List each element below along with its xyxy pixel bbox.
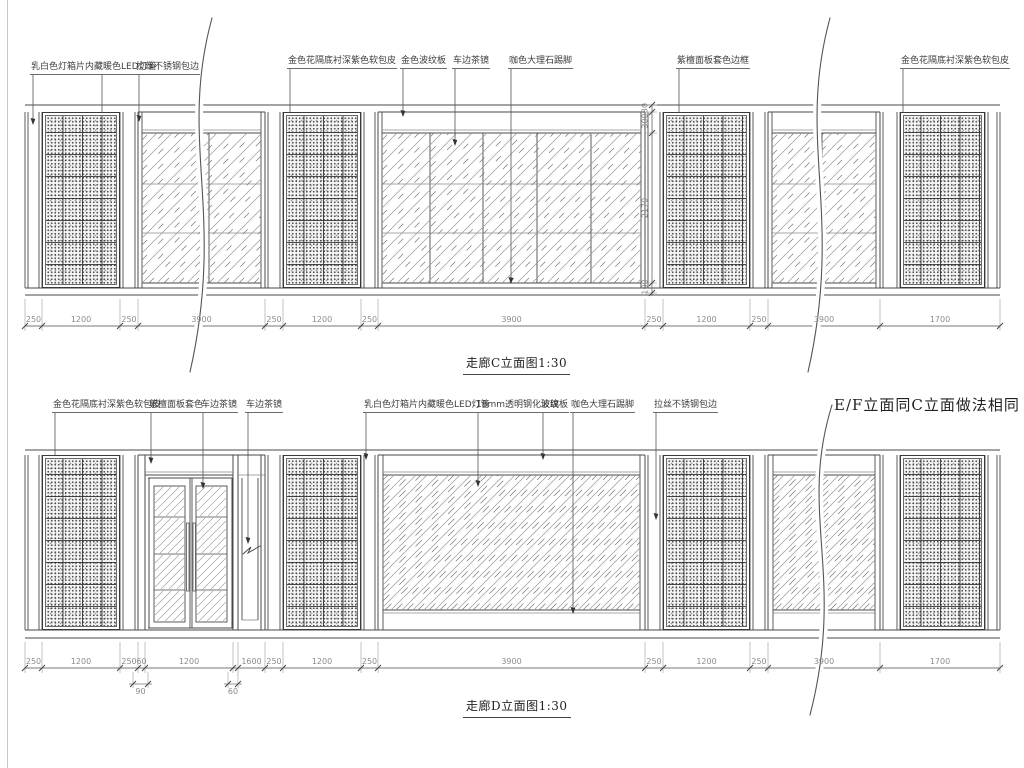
glass-hatch-line — [216, 506, 226, 516]
glass-hatch-line — [155, 487, 171, 503]
glass-hatch-line — [382, 133, 472, 223]
glass-hatch-line — [468, 475, 603, 610]
glass-hatch-line — [179, 201, 261, 283]
glass-hatch-line — [155, 558, 184, 587]
glass-hatch-line — [451, 475, 586, 610]
glass-hatch-line — [773, 475, 784, 486]
elevation-linework — [0, 0, 1024, 768]
glass-hatch-line — [446, 475, 581, 610]
glass-hatch-line — [611, 581, 640, 610]
glass-hatch-line — [383, 475, 482, 574]
glass-hatch-line — [462, 475, 597, 610]
glass-hatch-line — [396, 475, 531, 610]
glass-hatch-line — [607, 249, 641, 283]
glass-hatch-line — [424, 475, 559, 610]
glass-hatch-line — [825, 560, 875, 610]
glass-hatch-line — [404, 133, 554, 283]
glass-hatch-line — [177, 582, 184, 589]
glass-hatch-line — [383, 475, 427, 519]
glass-hatch-line — [434, 133, 584, 283]
glass-hatch-line — [155, 591, 179, 615]
glass-hatch-line — [197, 518, 205, 526]
glass-hatch-line — [509, 151, 641, 283]
glass-hatch-line — [556, 526, 640, 610]
glass-hatch-line — [155, 518, 179, 542]
glass-hatch-line — [550, 520, 640, 610]
glass-hatch-line — [383, 475, 465, 557]
glass-hatch-line — [174, 506, 184, 516]
glass-hatch-line — [772, 133, 847, 208]
glass-hatch-line — [197, 555, 205, 563]
glass-hatch-line — [383, 475, 515, 607]
glass-hatch-line — [202, 529, 226, 553]
glass-hatch-line — [197, 521, 226, 550]
glass-hatch-line — [419, 133, 569, 283]
glass-hatch-line — [172, 194, 261, 283]
glass-hatch-line — [382, 133, 494, 245]
glass-hatch-line — [562, 204, 641, 283]
glass-hatch-line — [614, 256, 641, 283]
glass-hatch-line — [772, 133, 779, 140]
title-elevation-d: 走廊D立面图1:30 — [463, 697, 571, 718]
glass-hatch-line — [512, 482, 640, 610]
glass-hatch-line — [794, 201, 876, 283]
leader-arrow — [288, 220, 293, 227]
glass-hatch-line — [197, 487, 205, 495]
glass-hatch-line — [197, 518, 213, 534]
glass-hatch-line — [824, 231, 876, 283]
glass-hatch-line — [382, 133, 509, 260]
glass-hatch-line — [847, 582, 875, 610]
glass-hatch-line — [435, 475, 570, 610]
glass-hatch-line — [383, 475, 394, 486]
glass-hatch-line — [802, 209, 876, 283]
glass-hatch-line — [605, 575, 640, 610]
glass-hatch-line — [592, 234, 641, 283]
leader-arrow — [901, 117, 906, 124]
glass-hatch-line — [208, 498, 226, 516]
glass-hatch-line — [383, 475, 405, 497]
glass-hatch-line — [391, 475, 526, 610]
glass-hatch-line — [166, 498, 184, 516]
glass-hatch-line — [532, 174, 641, 283]
glass-hatch-line — [772, 133, 787, 148]
glass-hatch-line — [142, 133, 172, 163]
glass-hatch-line — [155, 518, 171, 534]
glass-hatch-line — [155, 555, 163, 563]
glass-hatch-line — [572, 542, 640, 610]
glass-hatch-line — [199, 594, 226, 621]
glass-hatch-line — [224, 246, 261, 283]
door-handle — [187, 523, 190, 591]
glass-hatch-line — [155, 555, 171, 571]
glass-hatch-line — [383, 475, 410, 502]
glass-hatch-line — [382, 133, 457, 208]
leader-arrow — [31, 118, 36, 125]
glass-hatch-line — [418, 475, 553, 610]
glass-hatch-line — [622, 592, 640, 610]
glass-hatch-line — [254, 276, 261, 283]
glass-hatch-line — [382, 133, 389, 140]
leader-arrow — [401, 110, 406, 117]
glass-hatch-line — [567, 537, 640, 610]
glass-hatch-line — [142, 133, 179, 170]
glass-hatch-line — [187, 209, 261, 283]
glass-hatch-line — [402, 475, 537, 610]
glass-hatch-line — [223, 618, 226, 621]
glass-hatch-line — [479, 475, 614, 610]
door-handle — [193, 523, 196, 591]
glass-hatch-line — [382, 133, 419, 170]
glass-hatch-line — [534, 504, 640, 610]
glass-hatch-line — [554, 196, 641, 283]
glass-hatch-line — [197, 555, 221, 579]
glass-hatch-line — [803, 538, 875, 610]
glass-hatch-line — [197, 487, 213, 503]
glass-hatch-line — [382, 133, 412, 163]
glass-hatch-line — [181, 618, 184, 621]
glass-hatch-line — [495, 475, 630, 610]
glass-hatch-line — [382, 133, 397, 148]
glass-hatch-line — [383, 475, 471, 563]
glass-hatch-line — [772, 133, 817, 178]
glass-hatch-line — [792, 527, 875, 610]
glass-hatch-line — [155, 487, 163, 495]
glass-hatch-line — [155, 487, 179, 511]
glass-hatch-line — [773, 475, 855, 557]
mirror-zigzag-symbol — [243, 546, 260, 554]
glass-hatch-line — [773, 475, 800, 502]
glass-hatch-line — [382, 133, 434, 185]
glass-hatch-line — [772, 133, 809, 170]
glass-hatch-line — [382, 133, 524, 275]
glass-hatch-line — [869, 604, 875, 610]
glass-hatch-line — [383, 475, 388, 480]
glass-hatch-line — [869, 276, 876, 283]
glass-hatch-line — [786, 521, 875, 610]
glass-hatch-line — [142, 133, 232, 223]
leader-arrow — [100, 227, 105, 234]
glass-hatch-line — [517, 487, 640, 610]
glass-hatch-line — [155, 591, 163, 599]
glass-hatch-line — [160, 529, 184, 553]
glass-hatch-line — [157, 594, 184, 621]
glass-hatch-line — [383, 475, 487, 579]
ef-note: E/F立面同C立面做法相同 — [834, 394, 1020, 415]
glass-hatch-line — [197, 487, 221, 511]
glass-hatch-line — [142, 133, 187, 178]
glass-hatch-line — [168, 537, 184, 553]
glass-hatch-line — [773, 475, 795, 497]
glass-hatch-line — [429, 475, 564, 610]
glass-hatch-line — [633, 603, 640, 610]
leader-arrow — [677, 117, 682, 124]
glass-hatch-line — [155, 521, 184, 550]
glass-hatch-line — [382, 133, 427, 178]
glass-hatch-line — [773, 475, 806, 508]
glass-hatch-line — [773, 475, 839, 541]
glass-hatch-line — [501, 475, 636, 610]
glass-hatch-line — [219, 582, 226, 589]
title-elevation-c: 走廊C立面图1:30 — [463, 354, 570, 375]
glass-hatch-line — [383, 475, 476, 568]
glass-hatch-line — [142, 133, 224, 215]
glass-hatch-line — [197, 591, 221, 615]
glass-hatch-line — [863, 598, 875, 610]
glass-hatch-line — [449, 133, 599, 283]
glass-hatch-line — [383, 475, 504, 596]
glass-hatch-line — [211, 574, 226, 589]
wavy-break-mask — [808, 18, 830, 372]
glass-hatch-line — [197, 558, 226, 587]
glass-hatch-line — [858, 593, 875, 610]
glass-hatch-line — [197, 591, 205, 599]
glass-hatch-line — [413, 475, 548, 610]
glass-hatch-line — [457, 475, 592, 610]
glass-hatch-line — [839, 246, 876, 283]
glass-hatch-line — [155, 518, 163, 526]
glass-hatch-line — [210, 537, 226, 553]
glass-hatch-line — [207, 602, 226, 621]
glass-hatch-line — [479, 133, 629, 283]
glass-hatch-line — [383, 475, 449, 541]
glass-hatch-line — [490, 475, 625, 610]
glass-hatch-line — [787, 194, 876, 283]
glass-hatch-line — [862, 269, 876, 283]
glass-hatch-line — [142, 133, 157, 148]
glass-hatch-line — [773, 475, 778, 480]
leader-arrow — [476, 480, 481, 487]
glass-hatch-line — [197, 518, 221, 542]
glass-hatch-line — [539, 181, 641, 283]
leader-arrow — [541, 453, 546, 460]
glass-hatch-line — [517, 159, 641, 283]
wavy-break-mask — [810, 405, 832, 715]
glass-hatch-line — [589, 559, 640, 610]
leader-arrow — [201, 482, 206, 489]
leader-arrow — [137, 115, 142, 122]
title-d-second-underline — [463, 717, 566, 718]
glass-hatch-line — [547, 189, 641, 283]
glass-hatch-line — [176, 545, 184, 553]
glass-hatch-line — [209, 231, 261, 283]
glass-hatch-line — [382, 133, 502, 253]
glass-hatch-line — [494, 136, 641, 283]
glass-hatch-line — [158, 490, 184, 516]
glass-hatch-line — [583, 553, 640, 610]
glass-hatch-line — [197, 555, 213, 571]
glass-hatch-line — [584, 226, 641, 283]
glass-hatch-line — [773, 475, 817, 519]
glass-hatch-line — [218, 545, 226, 553]
glass-hatch-line — [142, 133, 194, 185]
glass-hatch-line — [169, 574, 184, 589]
glass-hatch-line — [484, 475, 619, 610]
glass-hatch-line — [841, 576, 875, 610]
glass-hatch-line — [383, 475, 416, 508]
glass-hatch-line — [383, 475, 443, 535]
glass-hatch-line — [382, 133, 517, 268]
glass-hatch-line — [440, 475, 575, 610]
leader-arrow — [246, 537, 251, 544]
glass-hatch-line — [197, 591, 213, 607]
glass-hatch-line — [155, 591, 171, 607]
glass-hatch-line — [247, 269, 261, 283]
glass-hatch-line — [382, 133, 464, 215]
leader-arrow — [53, 460, 58, 467]
glass-hatch-line — [637, 279, 641, 283]
glass-hatch-line — [383, 475, 498, 590]
glass-hatch-line — [142, 133, 149, 140]
glass-hatch-line — [407, 475, 542, 610]
glass-hatch-line — [165, 602, 184, 621]
glass-hatch-line — [385, 475, 520, 610]
glass-hatch-line — [772, 133, 854, 215]
leader-arrow — [453, 139, 458, 146]
glass-hatch-line — [847, 254, 876, 283]
glass-hatch-line — [200, 490, 226, 516]
glass-hatch-line — [569, 211, 641, 283]
cad-drawing-canvas: 2501200250390025012002503900250120025039… — [0, 0, 1024, 768]
leader-arrow — [149, 457, 154, 464]
leader-arrow — [654, 513, 659, 520]
glass-hatch-line — [155, 555, 179, 579]
glass-hatch-line — [389, 133, 539, 283]
glass-hatch-line — [464, 133, 614, 283]
glass-hatch-line — [383, 475, 438, 530]
glass-hatch-line — [232, 254, 261, 283]
glass-hatch-line — [473, 475, 608, 610]
glass-hatch-line — [772, 133, 802, 163]
